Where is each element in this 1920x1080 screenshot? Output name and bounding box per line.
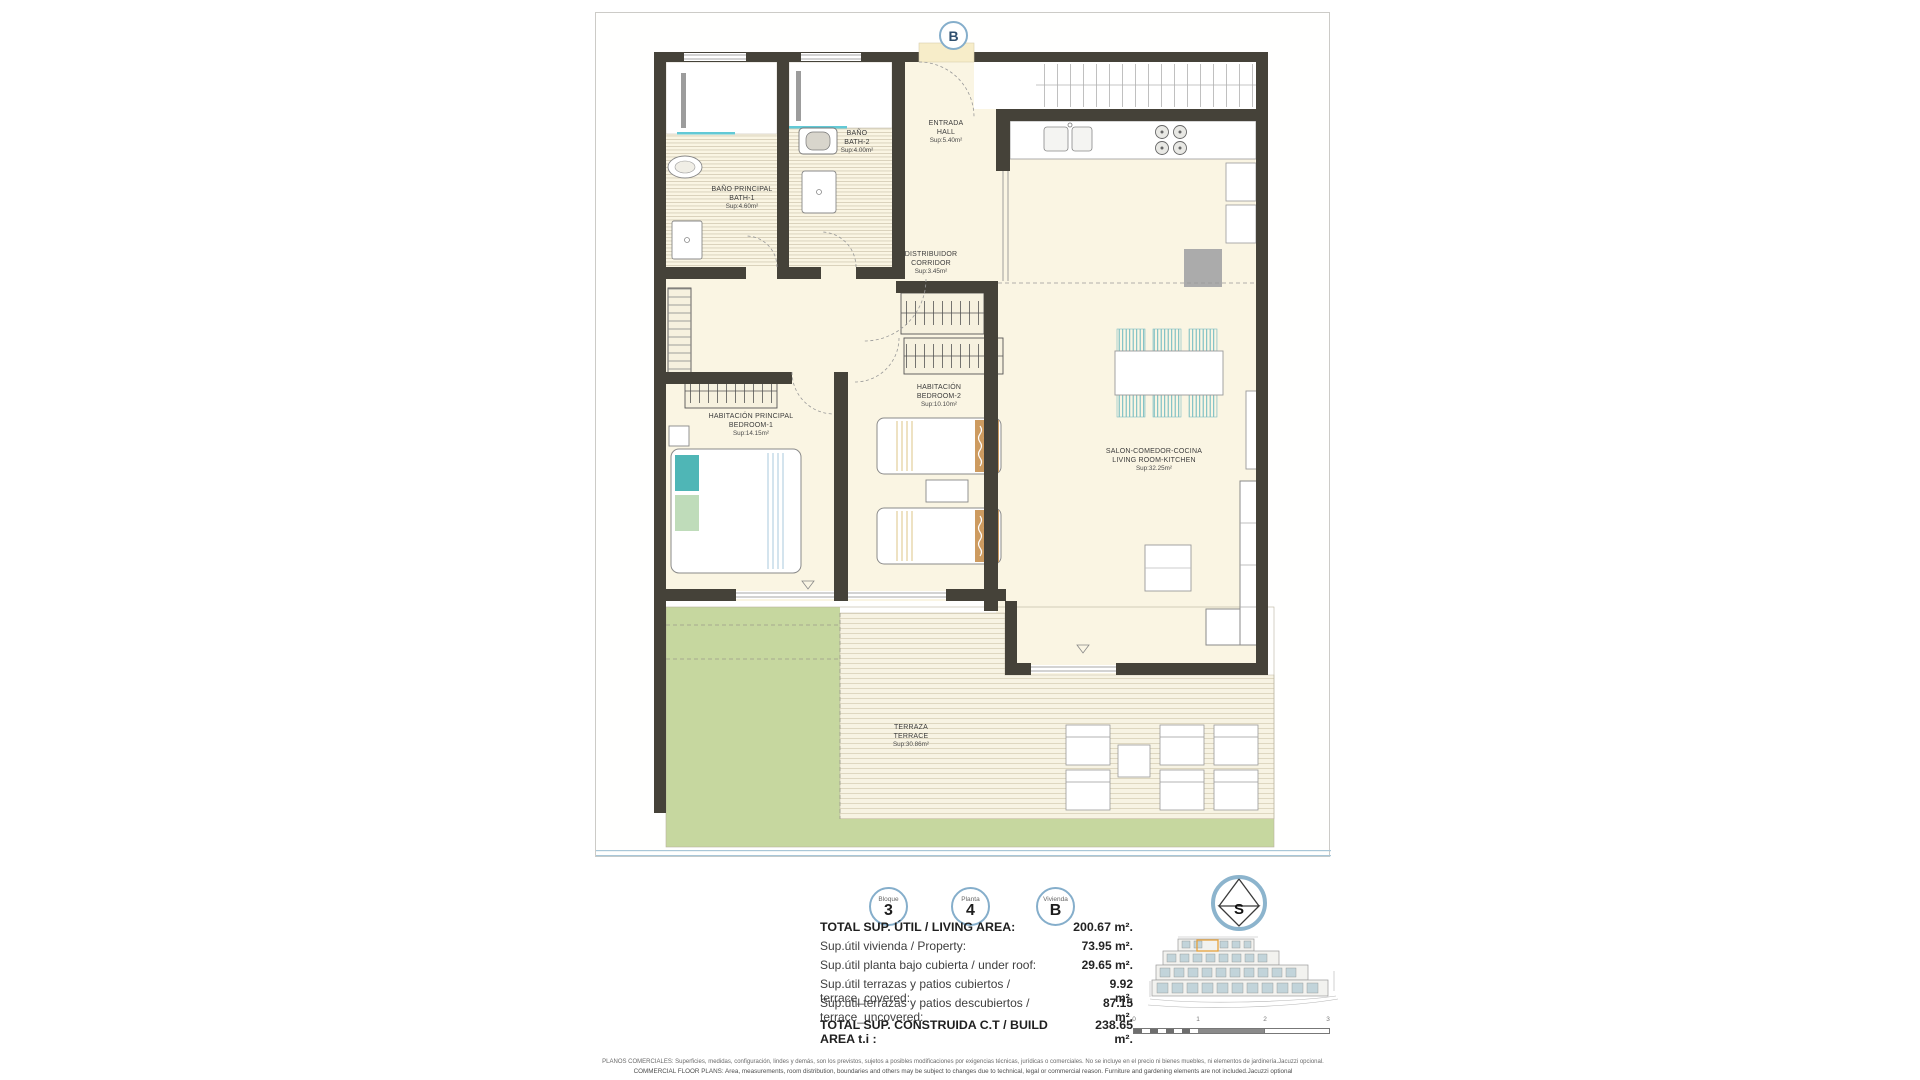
scale-bar-numbers: 0 1 2 3 xyxy=(1133,1016,1330,1025)
disclaimer-en: COMMERCIAL FLOOR PLANS: Area, measuremen… xyxy=(578,1067,1348,1076)
scale-segment-checkered xyxy=(1134,1029,1198,1033)
room-label-terrace: TERRAZA TERRACE Sup:30.86m² xyxy=(893,723,929,749)
floor-plan-page: B BAÑO PRINCIPAL BATH-1 Sup:4.60m² BAÑO … xyxy=(0,0,1920,1080)
unit-marker-badge: B xyxy=(939,21,968,50)
areas-table: TOTAL SUP. ÚTIL / LIVING AREA: 200.67 m²… xyxy=(820,920,1133,1037)
scale-bar-segments xyxy=(1133,1028,1330,1034)
unit-marker-letter: B xyxy=(948,29,958,43)
disclaimer-es: PLANOS COMERCIALES: Superficies, medidas… xyxy=(578,1058,1348,1067)
svg-text:S: S xyxy=(1234,901,1244,918)
communal-stairs xyxy=(1036,64,1256,107)
disclaimer: PLANOS COMERCIALES: Superficies, medidas… xyxy=(578,1058,1348,1076)
floor-plan-sheet: B BAÑO PRINCIPAL BATH-1 Sup:4.60m² BAÑO … xyxy=(595,12,1330,857)
compass-icon: S xyxy=(1208,872,1270,934)
scale-segment-solid xyxy=(1198,1029,1264,1033)
room-label-hall: ENTRADA HALL Sup:5.40m² xyxy=(929,119,964,145)
room-label-bedroom2: HABITACIÓN BEDROOM-2 Sup:10.10m² xyxy=(917,383,961,409)
room-label-bath1: BAÑO PRINCIPAL BATH-1 Sup:4.60m² xyxy=(711,185,772,211)
areas-row-terrace-covered: Sup.útil terrazas y patios cubiertos / t… xyxy=(820,977,1133,996)
scale-bar: 0 1 2 3 xyxy=(1133,1016,1330,1034)
areas-row-total-util: TOTAL SUP. ÚTIL / LIVING AREA: 200.67 m²… xyxy=(820,920,1133,939)
room-label-bedroom1: HABITACIÓN PRINCIPAL BEDROOM-1 Sup:14.15… xyxy=(709,412,794,438)
scale-segment-empty xyxy=(1264,1029,1329,1033)
areas-row-property: Sup.útil vivienda / Property: 73.95 m². xyxy=(820,939,1133,958)
room-label-corridor: DISTRIBUIDOR CORRIDOR Sup:3.45m² xyxy=(905,250,958,276)
sheet-bottom-rule xyxy=(596,850,1331,856)
areas-row-total-build: TOTAL SUP. CONSTRUIDA C.T / BUILD AREA t… xyxy=(820,1018,1133,1037)
room-label-living: SALON-COMEDOR-COCINA LIVING ROOM-KITCHEN… xyxy=(1106,447,1202,473)
areas-row-under-roof: Sup.útil planta bajo cubierta / under ro… xyxy=(820,958,1133,977)
floor-plan-drawing xyxy=(596,13,1331,858)
room-label-bath2: BAÑO BATH-2 Sup:4.00m² xyxy=(841,129,874,155)
areas-row-terrace-uncovered: Sup.útil terrazas y patios descubiertos … xyxy=(820,996,1133,1015)
building-elevation-sketch xyxy=(1148,931,1340,1015)
